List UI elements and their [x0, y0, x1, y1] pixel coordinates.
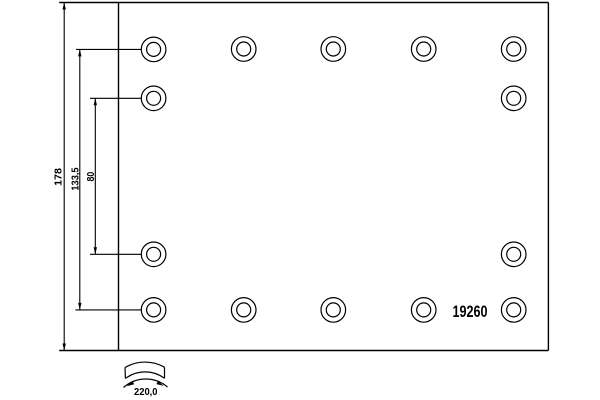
svg-text:220,0: 220,0 [134, 387, 158, 398]
svg-text:178: 178 [54, 168, 65, 186]
svg-text:80: 80 [86, 172, 97, 182]
svg-text:19260: 19260 [453, 303, 488, 321]
svg-text:133,5: 133,5 [71, 167, 82, 190]
